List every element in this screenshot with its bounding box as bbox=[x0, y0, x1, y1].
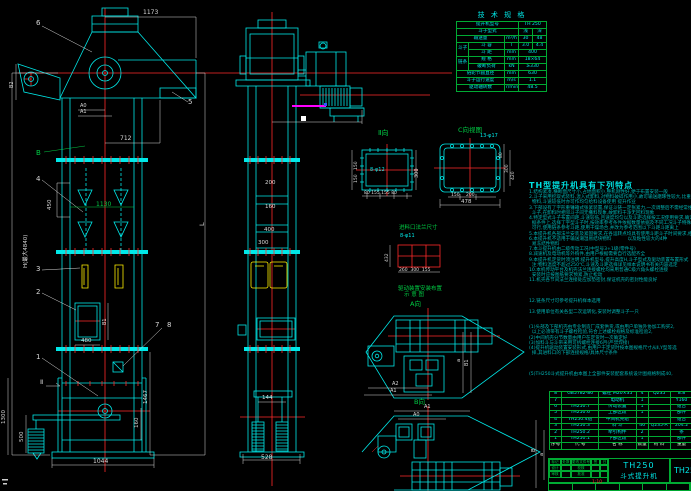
title-block-drawing-no: TH25 bbox=[670, 458, 691, 483]
table-cell: 30 bbox=[519, 36, 533, 43]
dim-478: 478 bbox=[461, 200, 472, 206]
table-cell: 序号 bbox=[550, 443, 562, 449]
dim-a1-plan1: A1 bbox=[390, 389, 397, 394]
dim-8phi12: 8-φ12 bbox=[370, 168, 385, 173]
table-cell: Q235-A bbox=[648, 423, 670, 429]
side-highlights bbox=[292, 103, 327, 121]
table-cell: GB5782-86 bbox=[562, 392, 599, 398]
dim-160: 160 bbox=[135, 418, 141, 429]
dim-1130: 1130 bbox=[96, 202, 111, 208]
dim-b1-plan1: B1 bbox=[465, 359, 470, 366]
balloon-2: 2 bbox=[36, 289, 40, 296]
title-block-main: TH250 斗式提升机 bbox=[608, 458, 670, 483]
label-b: B bbox=[36, 150, 41, 157]
label-view-c: C向视图 bbox=[458, 127, 482, 134]
section-mark-ii: Ⅱ bbox=[40, 379, 43, 386]
dim-150-ii-a: 150 bbox=[355, 161, 360, 170]
table-cell: 浅 bbox=[519, 29, 533, 36]
revision-cell bbox=[561, 471, 571, 477]
note-line: 11.机壳各节间法兰连接处应加垫密封,保证机壳的密封性能良好 bbox=[529, 279, 657, 284]
dim-a2-plan1: A2 bbox=[392, 382, 399, 387]
front-dimensions bbox=[8, 17, 205, 468]
dim-450: 450 bbox=[48, 200, 54, 211]
bom-block: 8GB5782-86螺栓 M20×354Q2358.87电动机1Y1606TH2… bbox=[549, 391, 691, 450]
table-cell: 螺栓 M20×35 bbox=[599, 392, 636, 398]
balloon-7: 7 bbox=[155, 322, 159, 329]
table-cell: 18×64 bbox=[519, 57, 547, 64]
table-cell: 斗 距 bbox=[469, 50, 505, 57]
dim-80-c: 80 bbox=[500, 152, 505, 158]
cad-drawing-canvas: 技 术 规 格 提升机型号TH 250斗子型式浅深输送量m³/h3048斗子斗 … bbox=[0, 0, 691, 491]
dim-1173: 1173 bbox=[143, 10, 158, 16]
dim-13phi17: 13-φ17 bbox=[480, 134, 498, 139]
table-cell: 4.4 bbox=[533, 43, 547, 50]
dim-a-plan1: a bbox=[457, 359, 462, 362]
dim-200-c: 200 bbox=[466, 194, 475, 199]
dim-420-c: 420 bbox=[512, 171, 517, 180]
revision-cell: 批准 bbox=[571, 471, 591, 477]
plan2-dims bbox=[372, 411, 544, 488]
table-cell: 代 号 bbox=[562, 443, 599, 449]
title-block-product: 斗式提升机 bbox=[620, 470, 658, 480]
dim-150-c: 150 bbox=[451, 194, 460, 199]
dim-150-ii-b: 150 bbox=[355, 174, 360, 183]
table-cell: kN bbox=[505, 64, 519, 71]
title-block-bottom-strip bbox=[548, 483, 691, 491]
table-cell: 斗子型式 bbox=[457, 29, 519, 36]
table-cell: 3.0 bbox=[519, 43, 533, 50]
dims-ii-bottom: 80 155 155 80 bbox=[364, 192, 397, 197]
dim-160-side: 160 bbox=[265, 205, 276, 211]
dim-144: 144 bbox=[262, 396, 273, 402]
table-cell: m/s bbox=[505, 78, 519, 85]
feed-flange-pattern bbox=[398, 245, 440, 267]
spec-table-block: 技 术 规 格 提升机型号TH 250斗子型式浅深输送量m³/h3048斗子斗 … bbox=[456, 10, 548, 92]
table-cell: 规 格 bbox=[469, 57, 505, 64]
table-cell: 名 称 bbox=[599, 443, 636, 449]
front-buckets bbox=[82, 265, 123, 288]
table-cell: l bbox=[505, 43, 519, 50]
dim-b1: B1 bbox=[103, 318, 108, 325]
plan-view-drive-b bbox=[362, 416, 540, 490]
dim-500: 500 bbox=[20, 432, 26, 443]
front-view bbox=[18, 8, 196, 459]
revision-cell: 审核 bbox=[549, 471, 561, 477]
label-view-a: A向 bbox=[410, 301, 421, 308]
dims-feed-bottom: 260 300 155 bbox=[399, 269, 431, 274]
balloon-5: 5 bbox=[188, 99, 192, 106]
note-line: 13.使用单位有关各型二次运转化,安装时调整斗子一只 bbox=[529, 311, 639, 316]
dim-b-plan2: B bbox=[532, 448, 538, 452]
note-line: 择,其进料口的下部连接规格/具体尺寸条件 bbox=[529, 352, 618, 357]
dim-l: L bbox=[199, 222, 206, 226]
table-cell: mm bbox=[505, 71, 519, 78]
dim-a1: A1 bbox=[80, 110, 87, 115]
table-cell: 提升机型号 bbox=[457, 22, 519, 29]
dim-712: 712 bbox=[120, 136, 131, 142]
revision-cell bbox=[591, 471, 600, 477]
table-cell: r/min bbox=[505, 85, 519, 92]
table-cell: 数量 bbox=[636, 443, 648, 449]
dim-8phi11: 8-φ11 bbox=[400, 234, 415, 239]
balloon-8: 8 bbox=[167, 322, 171, 329]
plan-view-drive-a bbox=[366, 316, 524, 398]
dim-528: 528 bbox=[261, 455, 272, 461]
screen-specks bbox=[2, 479, 8, 485]
table-cell: 48 bbox=[533, 36, 547, 43]
dim-200: 200 bbox=[265, 181, 276, 187]
note-line: (5)TH250斗式提升机由本图上全部件安装配套系统设计图规格制成40, bbox=[529, 373, 673, 378]
dim-300-ii: 300 bbox=[415, 168, 420, 178]
spec-table-title: 技 术 规 格 bbox=[456, 10, 548, 20]
balloon-4: 4 bbox=[36, 176, 40, 183]
dim-400: 400 bbox=[264, 228, 275, 234]
dim-1300: 1300 bbox=[2, 410, 8, 424]
bom-table: 8GB5782-86螺栓 M20×354Q2358.87电动机1Y1606TH2… bbox=[549, 391, 691, 450]
table-cell: 斗子运行速度 bbox=[457, 78, 505, 85]
table-cell: mm bbox=[505, 57, 519, 64]
table-cell: 斗子 bbox=[457, 43, 469, 57]
dim-300-side: 300 bbox=[258, 241, 269, 247]
table-cell: 链轮节圆直径 bbox=[457, 71, 505, 78]
dim-432: 432 bbox=[386, 253, 391, 262]
label-feed-flange: 进料口法兰尺寸 bbox=[399, 226, 438, 232]
table-cell: ≥330 bbox=[519, 64, 547, 71]
scale-note: 1:10 bbox=[592, 481, 602, 486]
caption-drive-2: 示 意 图 bbox=[404, 293, 424, 299]
table-cell: 重量 bbox=[670, 443, 691, 449]
table-cell: mm bbox=[505, 50, 519, 57]
dim-a-plan2: a bbox=[540, 453, 545, 456]
table-cell: TH 250 bbox=[519, 22, 547, 29]
table-cell: 输送量 bbox=[457, 36, 505, 43]
table-cell: 1.1 bbox=[519, 78, 547, 85]
dim-a0-plan2: A0 bbox=[413, 413, 420, 418]
dim-h: H(最大4840) bbox=[24, 235, 30, 268]
balloon-6: 6 bbox=[36, 20, 40, 27]
balloon-3: 3 bbox=[36, 266, 40, 273]
table-cell: 深 bbox=[533, 29, 547, 36]
dim-1467: 1467 bbox=[144, 390, 150, 404]
table-cell: 400 bbox=[519, 50, 547, 57]
table-cell: 48.5 bbox=[519, 85, 547, 92]
label-view-ii: Ⅱ向 bbox=[378, 130, 388, 137]
table-cell: m³/h bbox=[505, 36, 519, 43]
table-cell: 630 bbox=[519, 71, 547, 78]
dim-1044: 1044 bbox=[93, 459, 108, 465]
dim-b2: B2 bbox=[10, 81, 15, 88]
spec-table: 提升机型号TH 250斗子型式浅深输送量m³/h3048斗子斗 容l3.04.4… bbox=[456, 21, 547, 92]
balloon-1: 1 bbox=[36, 354, 40, 361]
table-cell: 链条 bbox=[457, 57, 469, 71]
dim-300-c: 300 bbox=[506, 164, 511, 173]
note-line: 12.链条尺寸可参考提升机样本选用 bbox=[529, 300, 601, 305]
title-block-model: TH250 bbox=[623, 461, 654, 470]
table-cell: 斗 容 bbox=[469, 43, 505, 50]
side-dimensions bbox=[243, 110, 362, 464]
title-block: 标记处数更改文件号签名日期设计校核审核批准 TH250 斗式提升机 TH25 bbox=[548, 458, 691, 483]
table-cell: 破断负荷 bbox=[469, 64, 505, 71]
dim-a1-plan2: A1 bbox=[424, 405, 431, 410]
dim-480: 480 bbox=[81, 339, 92, 345]
table-cell: 材 料 bbox=[648, 443, 670, 449]
table-cell: 驱动轴转数 bbox=[457, 85, 505, 92]
side-view bbox=[236, 20, 364, 457]
